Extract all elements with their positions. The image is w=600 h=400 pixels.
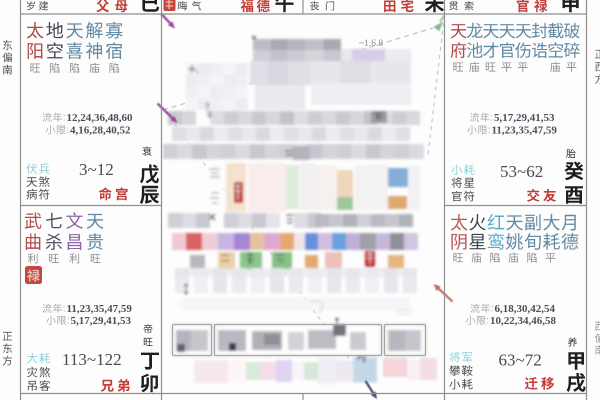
svg-text::: : [67,316,70,327]
svg-text:6,18,30,42,54: 6,18,30,42,54 [495,303,556,315]
svg-text::: : [491,304,494,315]
svg-text::: : [486,316,489,327]
svg-text:3~12: 3~12 [79,160,114,179]
svg-text:4,16,28,40,52: 4,16,28,40,52 [70,125,131,137]
svg-text::: : [63,113,66,124]
svg-text:5,17,29,41,53: 5,17,29,41,53 [494,112,555,124]
svg-text:11,23,35,47,59: 11,23,35,47,59 [67,303,133,315]
svg-text::: : [488,125,491,136]
svg-text:63~72: 63~72 [499,351,542,370]
svg-text::: : [66,125,69,136]
svg-text:53~62: 53~62 [500,162,543,181]
svg-text::: : [490,113,493,124]
svg-text::: : [63,304,66,315]
svg-text:11,23,35,47,59: 11,23,35,47,59 [492,125,558,137]
svg-text:~1.6.8: ~1.6.8 [359,39,383,49]
svg-text:12,24,36,48,60: 12,24,36,48,60 [67,112,134,124]
svg-text:113~122: 113~122 [62,350,122,369]
svg-text:5,17,29,41,53: 5,17,29,41,53 [71,315,132,327]
svg-text:10,22,34,46,58: 10,22,34,46,58 [490,315,557,327]
